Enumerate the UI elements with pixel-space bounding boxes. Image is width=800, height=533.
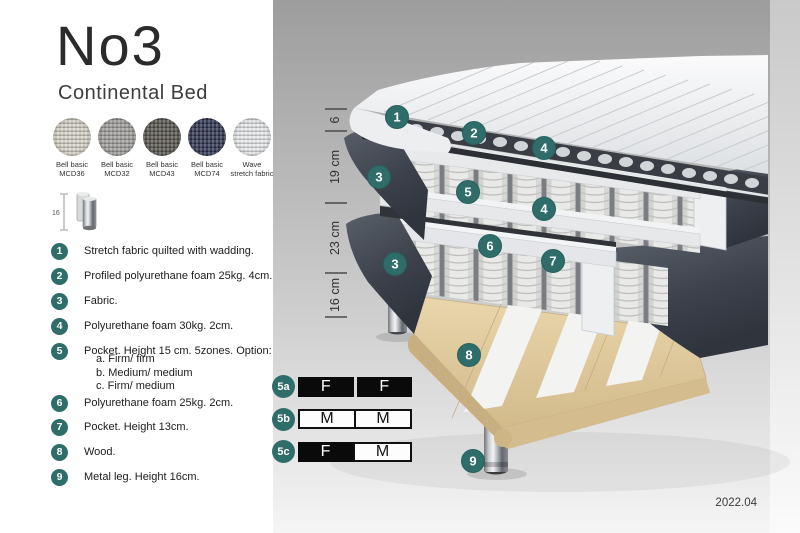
swatch-mcd74[interactable]: Bell basicMCD74 [188,118,226,179]
swatch-mcd32[interactable]: Bell basicMCD32 [98,118,136,179]
firmness-cell: M [300,411,354,427]
legend-num-badge: 4 [51,318,68,335]
badge-pocket-15: 5 [457,181,480,204]
badge-foam-25: 6 [479,235,502,258]
firmness-row-5b: 5b M M [272,408,412,431]
badge-profiled-foam: 2 [463,122,486,145]
legend-num-badge: 7 [51,419,68,436]
badge-stretch-fabric: 1 [386,106,409,129]
svg-text:3: 3 [375,170,382,185]
version-date: 2022.04 [715,497,757,509]
option-a: a. Firm/ firm [96,353,193,367]
swatch-circle[interactable] [53,118,91,156]
badge-foam-upper-bottom: 4 [533,198,556,221]
page-subtitle: Continental Bed [58,82,208,105]
firmness-cell: M [353,442,412,462]
svg-text:16: 16 [52,210,60,217]
badge-metal-leg: 9 [462,450,485,473]
svg-text:2: 2 [470,126,477,141]
fabric-swatches: Bell basicMCD36 Bell basicMCD32 Bell bas… [53,118,271,179]
swatch-circle[interactable] [98,118,136,156]
svg-text:1: 1 [393,110,400,125]
firmness-bar-5b: M M [298,409,412,429]
swatch-circle[interactable] [188,118,226,156]
leg-height-icon: 16 [50,188,120,236]
dim-label-lower-box: 23 cm [328,221,342,255]
badge-pocket-13: 7 [542,250,565,273]
svg-text:3: 3 [391,257,398,272]
swatch-circle[interactable] [143,118,181,156]
firmness-cell: F [298,442,353,462]
legend-num-badge: 1 [51,243,68,260]
swatch-wave-stretch[interactable]: Wavestretch fabric [233,118,271,179]
dim-label-topper: 6 [328,116,342,123]
page-title: No3 [56,18,165,74]
badge-fabric-upper: 3 [368,166,391,189]
legend-num-badge: 9 [51,469,68,486]
legend-item-8: 8 Wood. [51,444,116,461]
legend-item-7: 7 Pocket. Height 13cm. [51,419,189,436]
svg-text:4: 4 [540,141,548,156]
firmness-row-5a: 5a F F [272,375,412,398]
badge-foam-upper-top: 4 [533,137,556,160]
svg-text:9: 9 [469,454,476,469]
legend-num-badge: 5 [51,343,68,360]
svg-text:8: 8 [465,348,472,363]
svg-text:7: 7 [549,254,556,269]
legend-item-2: 2 Profiled polyurethane foam 25kg. 4cm. [51,268,272,285]
legend-num-badge: 6 [51,395,68,412]
firmness-row-5c: 5c F M [272,440,412,463]
firmness-cell: F [357,377,413,397]
legend-num-badge: 3 [51,293,68,310]
firmness-badge-5c: 5c [272,440,295,463]
legend-num-badge: 8 [51,444,68,461]
svg-text:6: 6 [486,239,493,254]
legend-item-5-options: a. Firm/ firm b. Medium/ medium c. Firm/… [96,353,193,394]
svg-text:4: 4 [540,202,548,217]
firmness-cell: F [298,377,354,397]
legend-item-6: 6 Polyurethane foam 25kg. 2cm. [51,395,233,412]
swatch-circle[interactable] [233,118,271,156]
legend-item-3: 3 Fabric. [51,293,118,310]
firmness-bar-5c: F M [298,442,412,462]
swatch-mcd43[interactable]: Bell basicMCD43 [143,118,181,179]
firmness-badge-5a: 5a [272,375,295,398]
firmness-cell: M [356,411,410,427]
svg-text:5: 5 [464,185,471,200]
firmness-bar-5a: F F [298,377,412,397]
swatch-mcd36[interactable]: Bell basicMCD36 [53,118,91,179]
legend-item-9: 9 Metal leg. Height 16cm. [51,469,200,486]
badge-wood: 8 [458,344,481,367]
dim-label-upper-box: 19 cm [328,150,342,184]
legend-item-1: 1 Stretch fabric quilted with wadding. [51,243,254,260]
badge-fabric-lower: 3 [384,253,407,276]
option-c: c. Firm/ medium [96,380,193,394]
firmness-badge-5b: 5b [272,408,295,431]
legend-num-badge: 2 [51,268,68,285]
legend-item-4: 4 Polyurethane foam 30kg. 2cm. [51,318,233,335]
dim-label-leg: 16 cm [328,278,342,312]
firmness-options-table: 5a F F 5b M M 5c F M [272,375,412,473]
spec-panel: No3 Continental Bed Bell basicMCD36 Bell… [0,0,273,533]
option-b: b. Medium/ medium [96,367,193,381]
